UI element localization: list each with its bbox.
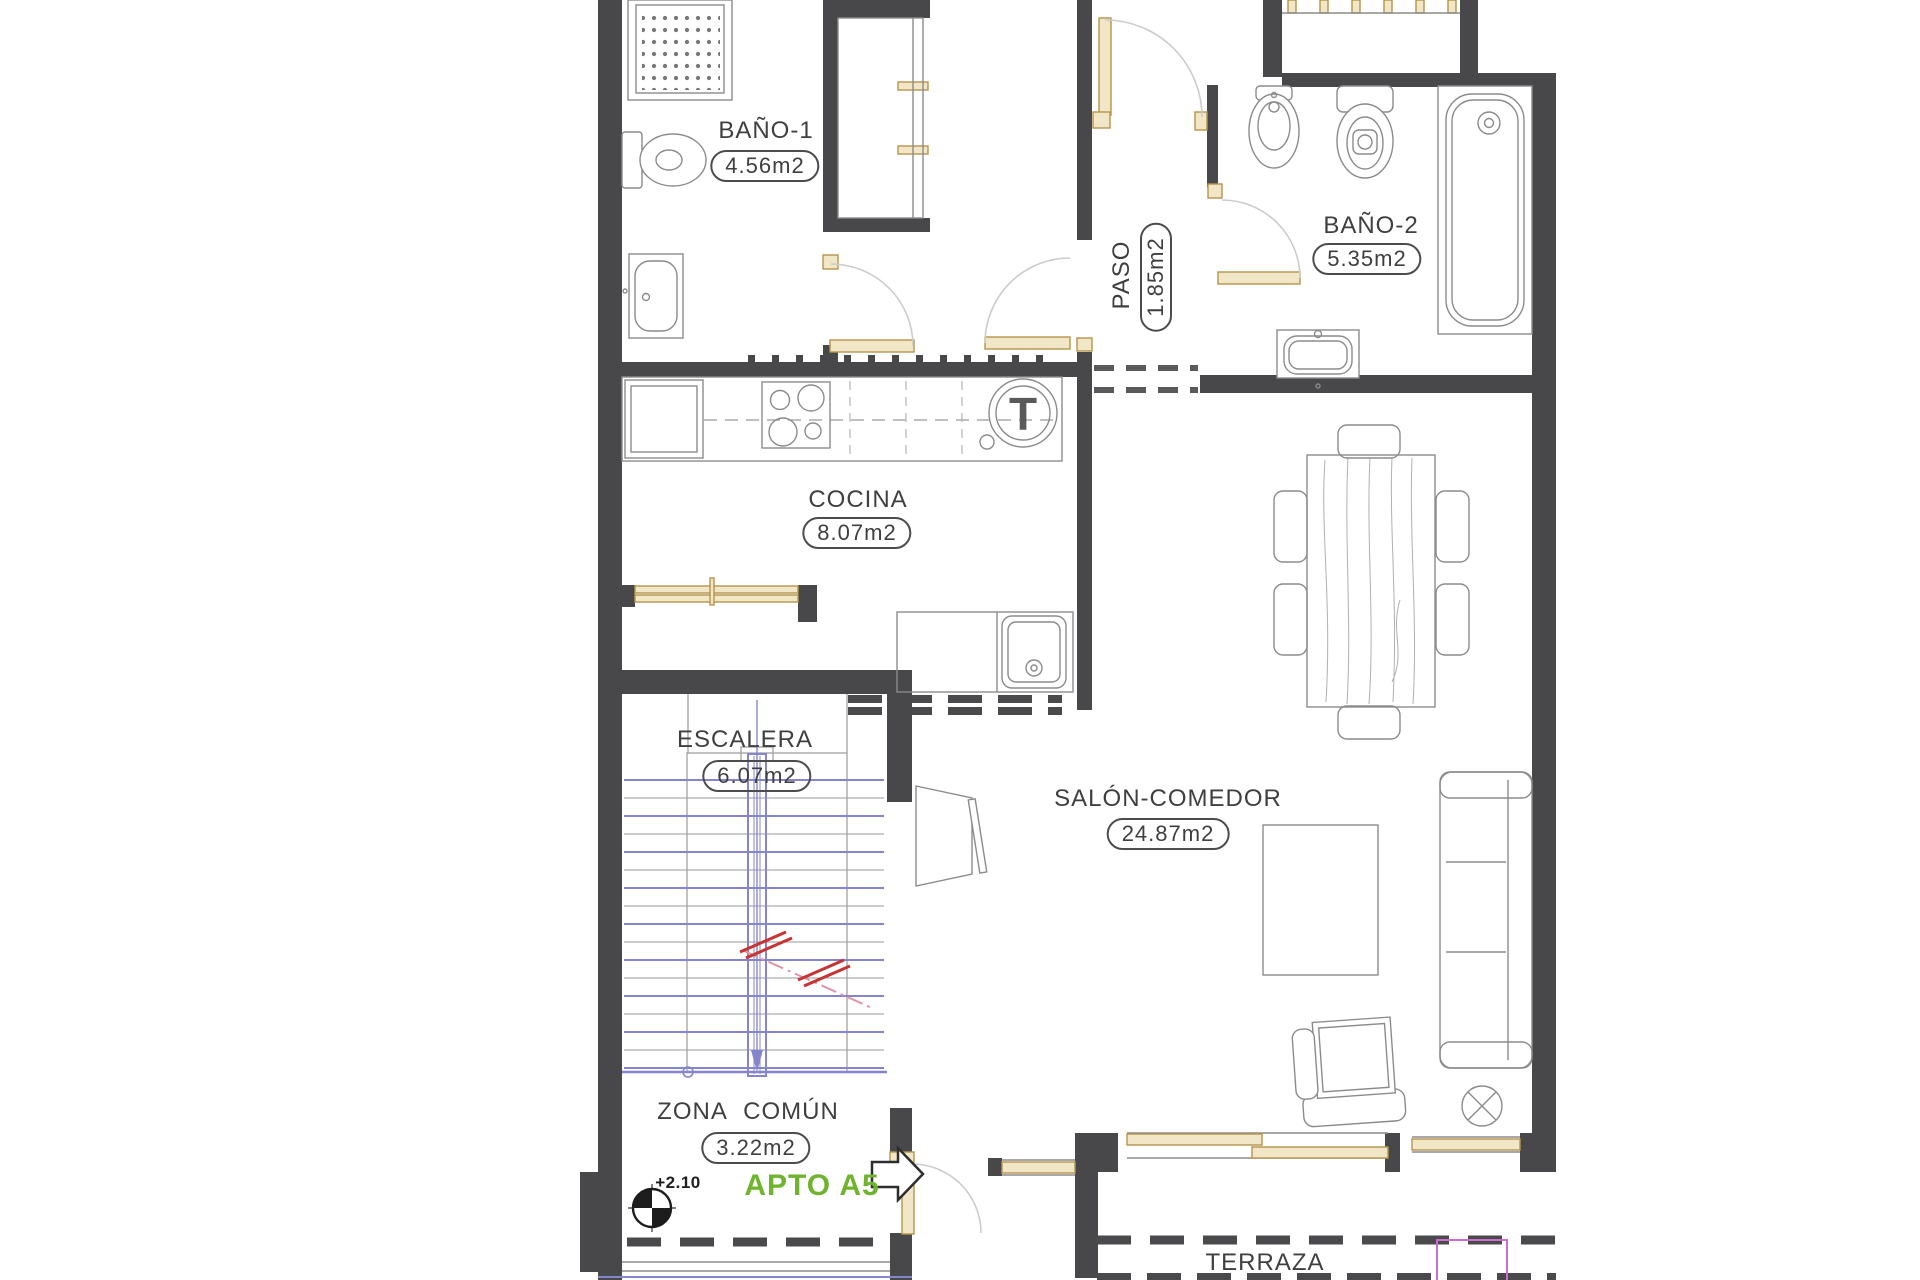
- tv-unit: [916, 786, 972, 886]
- room-label-bano1: BAÑO-1: [718, 117, 813, 145]
- floor-plan-drawing: T: [0, 0, 1920, 1280]
- door-leaf: [1218, 272, 1300, 284]
- water-heater: T: [980, 379, 1057, 449]
- door-leaf: [1099, 18, 1111, 115]
- coffee-table: [1263, 825, 1378, 975]
- kitchen-sink: [1002, 616, 1066, 688]
- water-heater-symbol: T: [1009, 388, 1037, 440]
- level-value: +2.10: [655, 1173, 701, 1193]
- floor-lamp: [1462, 1086, 1502, 1126]
- toilet: [622, 132, 642, 188]
- apartment-title: APTO A5: [744, 1169, 879, 1203]
- room-label-zona-comun: ZONA COMÚN: [657, 1098, 839, 1126]
- kitchen-sink-counter: [897, 612, 1073, 692]
- room-label-terraza: TERRAZA: [1205, 1249, 1324, 1277]
- floor-plan: T: [0, 0, 1920, 1280]
- room-area-escalera: 6.07m2: [702, 760, 811, 792]
- room-area-cocina: 8.07m2: [802, 517, 911, 549]
- door-leaf: [830, 340, 914, 352]
- window: [1002, 1162, 1075, 1173]
- door-swing-arc: [1222, 200, 1300, 278]
- kitchen-backsplash-ticks: [748, 355, 1043, 362]
- section-break-mark: [798, 960, 850, 986]
- sliding-door-panel: [1252, 1147, 1388, 1158]
- dining-chair: [1338, 425, 1400, 458]
- window: [635, 586, 798, 593]
- room-area-paso: 1.85m2: [1140, 222, 1172, 331]
- window: [635, 595, 798, 602]
- door-leaf: [823, 255, 838, 269]
- door-leaf: [985, 337, 1070, 349]
- walls: [580, 0, 1556, 1280]
- room-label-salon: SALÓN-COMEDOR: [1054, 785, 1282, 813]
- window: [1412, 1139, 1520, 1150]
- room-label-cocina: COCINA: [808, 486, 907, 514]
- washbasin: [629, 254, 683, 338]
- armchair: [1291, 1016, 1406, 1127]
- section-break-line: [742, 950, 872, 1008]
- dining-chair: [1338, 706, 1400, 739]
- door-swing-arc: [985, 258, 1070, 343]
- kitchen-pass-through-hatch: [848, 699, 1062, 711]
- door-swing-arc: [831, 264, 913, 346]
- sofa: [1440, 772, 1532, 1068]
- sliding-door-panel: [1127, 1134, 1262, 1145]
- dining-table: [1307, 455, 1435, 707]
- dining-chair: [1274, 491, 1307, 562]
- dining-chair: [1274, 584, 1307, 655]
- room-area-salon: 24.87m2: [1107, 818, 1230, 850]
- dining-chair: [1436, 584, 1469, 655]
- room-area-bano2: 5.35m2: [1312, 243, 1421, 275]
- room-label-bano2: BAÑO-2: [1323, 212, 1418, 240]
- room-area-bano1: 4.56m2: [710, 150, 819, 182]
- fridge: [625, 380, 703, 458]
- door-swing-arc: [1105, 20, 1202, 117]
- room-label-paso: PASO: [1108, 241, 1136, 310]
- dining-chair: [1436, 491, 1469, 562]
- furniture: [916, 425, 1532, 1128]
- room-area-zona-comun: 3.22m2: [701, 1132, 810, 1164]
- room-label-escalera: ESCALERA: [677, 726, 813, 754]
